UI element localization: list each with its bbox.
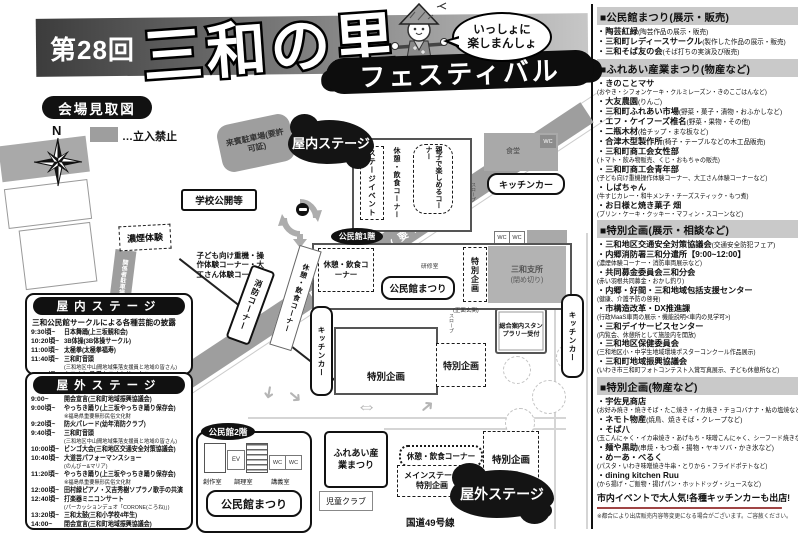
item-name: ・陶芸紅緑 (597, 27, 638, 36)
item-name: ・三和町商工会女性部 (597, 147, 679, 156)
section-title: ■特別企画(展示・相談など) (597, 220, 798, 238)
kominkan-matsuri-label-2f: 公民館まつり (206, 490, 302, 517)
no-entry-icon (296, 203, 309, 216)
schedule-row: 12:40頃~打楽器ミニコンサート (31, 496, 187, 505)
speech-line-1: いっしょに (473, 23, 531, 37)
festival-banner: フェスティバル (325, 49, 594, 94)
stairs-icon (246, 443, 268, 473)
item-inline-note: (桧チップ・まな板など) (638, 129, 708, 136)
item-name: ・三和町レディースサークル (597, 37, 702, 46)
item-name: ・お日様と焼き菓子 畑 (597, 201, 681, 210)
schedule-event: 防火パレード(幼年消防クラブ) (64, 421, 146, 430)
item-inline-note: (串焼・もつ煮・揚物・ヤキソバ・かき氷など) (638, 445, 774, 452)
item: ・三和町商工会青年部 (597, 165, 798, 175)
schedule-time: 12:40頃~ (31, 496, 64, 505)
item: ・共同募金委員会三和分会 (597, 268, 798, 278)
item-name: ・三和そば友の会 (597, 47, 663, 56)
schedule-time: 9:40頃~ (31, 430, 64, 439)
schedule-time: 10:20頃~ (31, 338, 64, 347)
schedule-row: 14:00~閉会宣言(三和町地域振興協議会) (31, 521, 187, 530)
schedule-event: 三和太鼓(三和小学校4年生) (64, 512, 137, 521)
road-line (384, 428, 566, 430)
schedule-note: ※福島県重要無形民俗文化財 (64, 414, 175, 421)
cooking-room-label: 調理室 (234, 477, 253, 486)
dining-hall-building: 食堂 WC (484, 133, 558, 171)
schedule-note: (のんびー&マリア) (64, 464, 175, 471)
item-note: (いわき市三和町フォトコンテスト入賞写真展示、子ども休憩所など) (597, 367, 784, 375)
schedule-time: 11:20頃~ (31, 471, 64, 480)
item: ・めーあ・べるく (597, 453, 798, 463)
branch-office-note: (閉め切り) (511, 275, 544, 285)
disclaimer-footnote: ※都合により出店販売内容等変更になる場合がございます。ご容赦ください。 (597, 507, 782, 520)
item-name: ・合津木型製作所 (597, 137, 663, 146)
outdoor-stage-schedule: 屋外ステージ 9:00~開会宣言(三和町地域振興協議会)9:00頃~やっちき踊り… (25, 372, 193, 530)
item-inline-note: (りんご) (638, 99, 662, 106)
smoke-experience-box: 濃煙体験 (118, 224, 171, 252)
schedule-time: 10:00頃~ (31, 446, 64, 455)
item-inline-note: (焼鳥、焼きそば・クレープなど) (646, 417, 742, 424)
speech-line-2: 楽しまんしょ (468, 37, 537, 51)
schedule-time: 9:20頃~ (31, 421, 64, 430)
schedule-time: 12:00頃~ (31, 487, 64, 496)
right-section: ■ふれあい産業まつり(物産など)・きのことマサ(おやき・シフォンケーキ・クルミレ… (597, 59, 798, 218)
item: ・三和町レディースサークル(製作した作品の展示・販売) (597, 37, 798, 47)
schedule-event: 閉会宣言(三和町地域振興協議会) (64, 521, 152, 530)
schedule-time: 9:30頃~ (31, 329, 64, 338)
schedule-note: (パーカッションデュオ「CORONE(ころね)」) (64, 505, 175, 512)
item-note: (内覧会、休憩所として施設内を開放) (597, 332, 784, 340)
schedule-row: 11:20頃~やっちき踊り(上三坂やっちき踊り保存会) (31, 471, 187, 480)
schedule-row: 11:40頃~三和町音頭 (31, 356, 187, 365)
item: ・三和デイサービスセンター (597, 322, 798, 332)
slope-label: スロープ (470, 182, 477, 207)
road-line (586, 233, 588, 529)
schedule-event: 太極拳(太極拳福寿) (64, 347, 116, 356)
item-note: (パスタ・いわき味噌焼き牛串・とりから・フライドポテトなど) (597, 463, 784, 471)
item-name: ・三和デイサービスセンター (597, 322, 703, 331)
legend-swatch (90, 127, 118, 142)
compass-north-label: N (52, 123, 61, 138)
building-annex (527, 230, 567, 243)
item-note: (子ども向け重機操作体験コーナー、大工さん体験コーナーなど) (597, 175, 784, 183)
legend-label: …立入禁止 (122, 128, 177, 144)
kitchen-car-label-mid: キッチンカー (310, 306, 333, 396)
schedule-event: 3B体操(3B体操サークル) (64, 338, 131, 347)
building-gym: 特別企画 (334, 327, 438, 395)
right-section: ■特別企画(物産など)・宇佐見商店(お好み焼き・焼きそば・たこ焼き・イカ焼き・チ… (597, 377, 798, 488)
item-note: (から揚げ・ご飯物・揚げパン・ホットドッグ・ジュースなど) (597, 481, 784, 489)
item: ・きのことマサ (597, 79, 798, 89)
item-name: ・市構造改革・DX推進課 (597, 304, 690, 313)
wc-label: WC (285, 455, 302, 470)
schedule-row: 9:30頃~日本舞踊(上三坂観和会) (31, 329, 187, 338)
schedule-event: 田村緑ピアノ・又吉秀樹ソプラノ歌手の共演 (64, 487, 183, 496)
item: ・二瓶木材(桧チップ・まな板など) (597, 127, 798, 137)
indoor-stage-title: 屋内ステージ (33, 297, 185, 315)
kitchen-car-label-right: キッチンカー (561, 294, 584, 378)
item: ・三和地区交通安全対策協議会(交通安全防犯フェア) (597, 240, 798, 250)
special-plan-label-gym: 特別企画 (336, 369, 436, 383)
ev-label: EV (227, 450, 245, 470)
indoor-stage-subtitle: 三和公民館サークルによる各種芸能の披露 (32, 317, 187, 328)
family-corner-area: 親子で楽しめるコーナー (413, 144, 453, 214)
item-name: ・そば八 (597, 425, 630, 434)
item-inline-note: (交通安全防犯フェア) (712, 242, 776, 249)
item-note: (プリン・ケーキ・クッキー・マフィン・スコーンなど) (597, 211, 784, 219)
item-name: ・大友農園 (597, 97, 638, 106)
item-note: (三和地区小・中学生地域環境ポスターコンクール作品展示) (597, 349, 784, 357)
guest-parking-label: 来賓駐車場(要許可証) (223, 127, 290, 160)
item: ・合津木型製作所(椅子・テーブルなどの木工品販売) (597, 137, 798, 147)
item-note: (おやき・シフォンケーキ・クルミレーズン・きのこごはんなど) (597, 89, 784, 97)
map-caption: 会場見取図 (42, 96, 152, 119)
schedule-row: 10:20頃~3B体操(3B体操サークル) (31, 338, 187, 347)
kominkan-2f-label: 公民館2階 (201, 423, 255, 440)
item: ・宇佐見商店 (597, 397, 798, 407)
item: ・三和町商工会女性部 (597, 147, 798, 157)
schedule-row: 9:40頃~三和町音頭 (31, 430, 187, 439)
right-section: ■特別企画(展示・相談など)・三和地区交通安全対策協議会(交通安全防犯フェア)・… (597, 220, 798, 375)
edition-label: 第28回 (50, 30, 135, 67)
item-name: ・ネモト物産 (597, 415, 646, 424)
item-name: ・きのことマサ (597, 79, 654, 88)
right-column-sections: ■公民館まつり(展示・販売)・陶芸紅緑(陶芸作品の展示・販売)・三和町レディース… (597, 7, 798, 488)
schedule-event: 打楽器ミニコンサート (64, 496, 124, 505)
schedule-event: 三和町音頭 (64, 356, 94, 365)
schedule-row: 11:00頃~太極拳(太極拳福寿) (31, 347, 187, 356)
schedule-row: 9:20頃~防火パレード(幼年消防クラブ) (31, 421, 187, 430)
item: ・三和地区保健委員会 (597, 339, 798, 349)
item-name: ・エフ・ケイフーズ椎名 (597, 117, 687, 126)
wc-label: WC (540, 135, 556, 148)
item-inline-note: (椅子・テーブルなどの木工品販売) (663, 139, 766, 146)
guest-parking-blob: 来賓駐車場(要許可証) (215, 112, 297, 174)
schedule-time: 11:00頃~ (31, 347, 64, 356)
lecture-room-label: 講義室 (271, 477, 290, 486)
item-name: ・三和地区保健委員会 (597, 339, 679, 348)
fureai-industry-box: ふれあい産業まつり (324, 431, 388, 488)
indoor-stage-callout: 屋内ステージ (288, 120, 374, 164)
item: ・市構造改革・DX推進課 (597, 304, 798, 314)
branch-office-area: 三和支所 (閉め切り) (488, 246, 566, 303)
craft-room-label: 創作室 (203, 477, 222, 486)
schedule-row: 12:00頃~田村緑ピアノ・又吉秀樹ソプラノ歌手の共演 (31, 487, 187, 496)
item: ・陶芸紅緑(陶芸作品の展示・販売) (597, 27, 798, 37)
item-note: (濃煙体験コーナー・消防車両展示など) (597, 260, 784, 268)
item: ・三和そば友の会(そば打ちの実演及び販売) (597, 47, 798, 57)
item-name: ・三和地区交通安全対策協議会 (597, 240, 712, 249)
item-name: ・宇佐見商店 (597, 397, 646, 406)
item: ・内郷・好間・三和地域包括支援センター (597, 286, 798, 296)
schedule-row: 13:20頃~三和太鼓(三和小学校4年生) (31, 512, 187, 521)
item: ・ネモト物産(焼鳥、焼きそば・クレープなど) (597, 415, 798, 425)
outdoor-stage-title: 屋外ステージ (33, 376, 185, 394)
item: ・内郷消防署三和分遣所【9:00~12:00】 (597, 250, 798, 260)
two-way-arrow-icon: ⇔ (356, 396, 377, 417)
item-note: (お好み焼き・焼きそば・たこ焼き・イカ焼き・チョコバナナ・鮎の塩焼など) (597, 407, 784, 415)
item: ・三和町ふれあい市場(野菜・菓子・漬物・おふかしなど) (597, 107, 798, 117)
item-note: (行政MaaS車両の展示・機能説明<車内の見学可>) (597, 314, 784, 322)
schedule-time: 13:20頃~ (31, 512, 64, 521)
column-divider (591, 4, 593, 529)
item: ・お日様と焼き菓子 畑 (597, 201, 798, 211)
schedule-time: 9:00~ (31, 396, 64, 405)
schedule-event: 開会宣言(三和町地域振興協議会) (64, 396, 152, 405)
item: ・エフ・ケイフーズ椎名(野菜・果物・その他) (597, 117, 798, 127)
item-inline-note: (野菜・菓子・漬物・おふかしなど) (679, 109, 782, 116)
item-inline-note: (陶芸作品の展示・販売) (638, 29, 708, 36)
main-entrance-label: (正面玄関) (453, 306, 479, 314)
item: ・大友農園(りんご) (597, 97, 798, 107)
speech-bubble: いっしょに 楽しまんしょ (452, 12, 552, 62)
item-name: ・三和町ふれあい市場 (597, 107, 679, 116)
section-title: ■ふれあい産業まつり(物産など) (597, 59, 798, 77)
schedule-time: 11:40頃~ (31, 356, 64, 365)
schedule-event: やっちき踊り(上三坂やっちき踊り保存会) (64, 405, 176, 414)
outdoor-stage-rows: 9:00~開会宣言(三和町地域振興協議会)9:00頃~やっちき踊り(上三坂やっち… (31, 396, 187, 530)
item-name: ・しばちゃん (597, 183, 646, 192)
item: ・しばちゃん (597, 183, 798, 193)
item-note: (玉こんにゃく・イカ串焼き・あげもち・味噌こんにゃく、シーフード焼きなど) (597, 435, 784, 443)
kitchen-car-highlight: 市内イベントで大人気!各種キッチンカーも出店! (597, 490, 792, 504)
training-room-label: 研修室 (421, 261, 438, 270)
item-note: (牛すじカレー・和牛メンチ・チーズスティック・もつ煮) (597, 193, 784, 201)
tree (532, 380, 566, 414)
festival-flyer: 第28回 三和の里 フェスティバル いっしょに 楽しまんしょ 会場見取図 …立入… (0, 0, 800, 533)
item: ・三和町地域振興協議会 (597, 357, 798, 367)
item-name: ・共同募金委員会三和分会 (597, 268, 695, 277)
item-name: ・二瓶木材 (597, 127, 638, 136)
item-inline-note: (そば打ちの実演及び販売) (663, 49, 740, 56)
item-name: ・dining kitchen Ruu (597, 471, 679, 480)
schedule-note: (三和地区中山間地域集落支援員と地域の皆さん) (64, 365, 175, 372)
item-inline-note: (野菜・果物・その他) (687, 119, 751, 126)
schedule-note: (三和地区中山間地域集落支援員と地域の皆さん) (64, 439, 175, 446)
kominkan-matsuri-label-1f: 公民館まつり (381, 276, 455, 300)
item-name: ・内郷・好間・三和地域包括支援センター (597, 286, 753, 295)
right-section: ■公民館まつり(展示・販売)・陶芸紅緑(陶芸作品の展示・販売)・三和町レディース… (597, 7, 798, 57)
flow-arrow-icon: ➜ (260, 384, 279, 401)
section-title: ■特別企画(物産など) (597, 377, 798, 395)
item-note: (赤い羽根共同募金・おかし釣り) (597, 278, 784, 286)
schedule-event: 三和町音頭 (64, 430, 94, 439)
children-club-box: 児童クラブ (319, 491, 373, 511)
schedule-row: 9:00頃~やっちき踊り(上三坂やっちき踊り保存会) (31, 405, 187, 414)
right-column: ■公民館まつり(展示・販売)・陶芸紅緑(陶芸作品の展示・販売)・三和町レディース… (597, 5, 798, 531)
special-plan-vertical: 特別企画 (463, 247, 487, 302)
schedule-time: 9:00頃~ (31, 405, 64, 414)
item: ・麺や黒助(串焼・もつ煮・揚物・ヤキソバ・かき氷など) (597, 443, 798, 453)
item-name: ・めーあ・べるく (597, 453, 663, 462)
schedule-event: 日本舞踊(上三坂観和会) (64, 329, 128, 338)
flow-arrow-icon: ➜ (284, 385, 306, 407)
schedule-event: やっちき踊り(上三坂やっちき踊り保存会) (64, 471, 176, 480)
info-desk-box: 総合案内スタンプラリー受付 (495, 308, 547, 354)
special-plan-box-mid: 特別企画 (436, 343, 486, 387)
item: ・dining kitchen Ruu (597, 471, 798, 481)
schedule-row: 10:40頃~大道芸パフォーマンスショー (31, 455, 187, 464)
schedule-note: ※福島県重要無形民俗文化財 (64, 480, 175, 487)
item-note: (健康、介護予防の啓発) (597, 296, 784, 304)
item-name: ・三和町地域振興協議会 (597, 357, 687, 366)
route-49-label: 国道49号線 (406, 515, 455, 529)
schedule-row: 9:00~開会宣言(三和町地域振興協議会) (31, 396, 187, 405)
item-inline-note: (製作した作品の展示・販売) (702, 39, 786, 46)
flow-arrow-icon: ➜ (416, 395, 438, 417)
wc-label: WC (269, 455, 286, 470)
kitchen-car-label-top: キッチンカー (487, 173, 565, 195)
schedule-row: 10:00頃~ビンゴ大会(三和地区交通安全対策協議会) (31, 446, 187, 455)
compass-rose-icon (33, 137, 83, 187)
rest-corner-vertical: 休憩・飲食コーナー (386, 146, 406, 220)
schedule-event: 大道芸パフォーマンスショー (64, 455, 142, 464)
item: ・そば八 (597, 425, 798, 435)
tree (503, 356, 531, 384)
school-open-label: 学校公開等 (181, 189, 257, 211)
rest-corner-room: 休憩・飲食コーナー (318, 248, 374, 292)
indoor-stage-schedule: 屋内ステージ 三和公民館サークルによる各種芸能の披露 9:30頃~日本舞踊(上三… (25, 293, 193, 375)
item-note: (トマト・飲み物販売、くじ・おもちゃの販売) (597, 157, 784, 165)
item-name: ・内郷消防署三和分遣所【9:00~12:00】 (597, 250, 746, 259)
slope-label: スロープ (448, 313, 455, 338)
branch-office-label: 三和支所 (511, 264, 543, 275)
roundabout-arrows-icon (276, 194, 324, 248)
item-name: ・麺や黒助 (597, 443, 638, 452)
kominkan-1f-label: 公民館1階 (331, 228, 383, 245)
school-building-outline (19, 222, 98, 290)
section-title: ■公民館まつり(展示・販売) (597, 7, 798, 25)
item-name: ・三和町商工会青年部 (597, 165, 679, 174)
schedule-time: 10:40頃~ (31, 455, 64, 464)
dining-hall-label: 食堂 (506, 146, 520, 156)
room-cell (204, 443, 226, 473)
schedule-time: 14:00~ (31, 521, 64, 530)
schedule-event: ビンゴ大会(三和地区交通安全対策協議会) (64, 446, 176, 455)
